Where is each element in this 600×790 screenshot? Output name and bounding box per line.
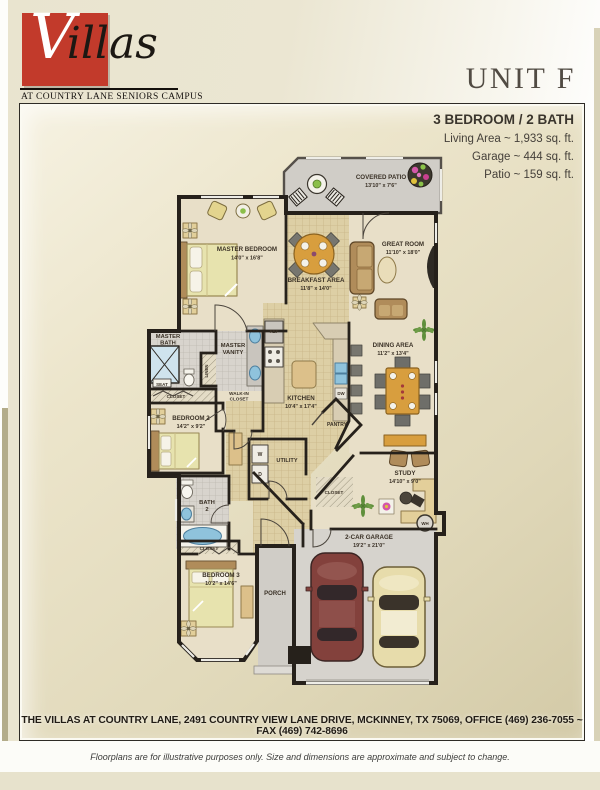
label-master-vanity: MASTERVANITY — [221, 343, 246, 356]
label-linen: LINEN — [204, 365, 209, 378]
plan-frame: 3 BEDROOM / 2 BATH Living Area ~ 1,933 s… — [19, 103, 585, 741]
breakfast-table — [289, 233, 340, 278]
label-dryer: D — [258, 472, 262, 478]
label-walkin-closet: WALK-INCLOSET — [229, 391, 249, 402]
summary-headline: 3 BEDROOM / 2 BATH — [433, 112, 574, 127]
porch-wall-stub — [288, 646, 311, 664]
floorplan-drawing: COVERED PATIO13'10" x 7'6" MASTER BEDROO… — [141, 151, 449, 707]
logo-rule-line — [20, 88, 178, 90]
brand-logo-script: Villas — [30, 6, 158, 68]
label-closet-study: CLOSET — [325, 490, 344, 495]
label-ref: REF — [270, 329, 279, 334]
car-maroon — [306, 553, 368, 661]
logo-rest: illas — [67, 18, 158, 69]
right-edge-stripe — [594, 28, 600, 790]
label-closet-master: CLOSET — [167, 394, 186, 399]
car-cream — [368, 567, 430, 667]
label-utility: UTILITY — [276, 458, 297, 464]
unit-title: UNIT F — [466, 62, 576, 96]
label-dw: DW — [337, 391, 345, 396]
label-pantry: PANTRY — [327, 422, 348, 428]
label-water-heater: WH — [421, 521, 428, 526]
porch-step — [254, 666, 298, 674]
floorplan-sheet: Villas AT COUNTRY LANE SENIORS CAMPUS UN… — [0, 0, 600, 790]
brand-tagline: AT COUNTRY LANE SENIORS CAMPUS — [21, 92, 281, 102]
label-washer: W — [258, 452, 263, 458]
address-bar: THE VILLAS AT COUNTRY LANE, 2491 COUNTRY… — [20, 715, 584, 737]
label-seat: SEAT — [156, 382, 168, 387]
disclaimer-text: Floorplans are for illustrative purposes… — [0, 752, 600, 762]
patio-flower-pot — [408, 163, 432, 187]
left-olive-stripe — [2, 408, 8, 782]
bottom-beige-band — [0, 772, 600, 790]
summary-patio-area: Patio ~ 159 sq. ft. — [433, 169, 574, 181]
label-porch: PORCH — [264, 591, 286, 597]
summary-living-area: Living Area ~ 1,933 sq. ft. — [433, 133, 574, 145]
summary-block: 3 BEDROOM / 2 BATH Living Area ~ 1,933 s… — [433, 112, 574, 187]
summary-garage-area: Garage ~ 444 sq. ft. — [433, 151, 574, 163]
label-closet-bedroom3: CLOSET — [200, 546, 219, 551]
